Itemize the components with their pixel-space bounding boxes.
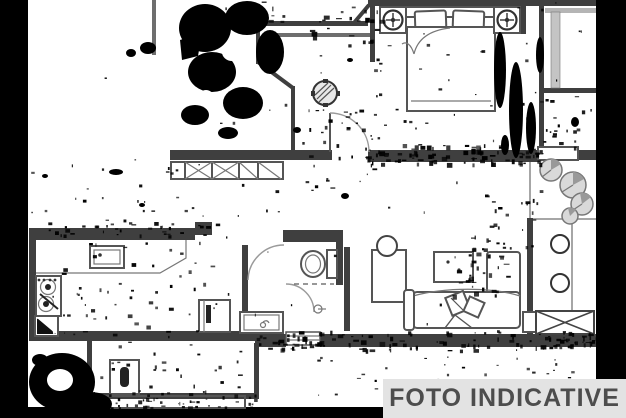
- x-hatched-unit: [536, 311, 594, 334]
- plant: [562, 208, 578, 224]
- ceiling-light: [311, 79, 340, 107]
- nightstand-right: [494, 7, 520, 33]
- double-bed: [402, 7, 495, 111]
- corner-cabinet: [35, 316, 58, 336]
- speckle-noise: [31, 2, 604, 412]
- toilet: [301, 250, 337, 278]
- pillow-left: [415, 10, 447, 28]
- scan-border-right: [596, 0, 626, 380]
- vanity-sink: [240, 312, 283, 333]
- plant: [540, 159, 562, 181]
- banner-label: FOTO INDICATIVE: [389, 384, 620, 413]
- entry-door-arc: [330, 113, 369, 152]
- plants: [540, 159, 593, 224]
- pillow-right: [453, 10, 485, 28]
- round-stools: [551, 235, 569, 292]
- kitchen-counter: [36, 240, 186, 273]
- washing-machine: [110, 360, 139, 394]
- ink-blob-top-center: [179, 1, 284, 139]
- wardrobe-x-panels: [171, 162, 283, 179]
- fridge-cabinet: [199, 300, 230, 332]
- floor-plan-image: FOTO INDICATIVE: [0, 0, 626, 418]
- bathroom-door-arc: [248, 245, 284, 280]
- dining-table: [372, 236, 406, 302]
- floor-plan-drawing: [0, 0, 626, 418]
- ink-blob-bottom-left: [29, 353, 112, 416]
- coffee-table: [434, 252, 473, 282]
- foto-indicative-banner: FOTO INDICATIVE: [383, 379, 626, 418]
- chair-circle: [377, 236, 397, 256]
- ink-streaks-right-of-bed: [494, 32, 544, 158]
- cooktop: [36, 276, 61, 316]
- shower-arc: [286, 284, 334, 313]
- scan-border-left: [0, 0, 28, 418]
